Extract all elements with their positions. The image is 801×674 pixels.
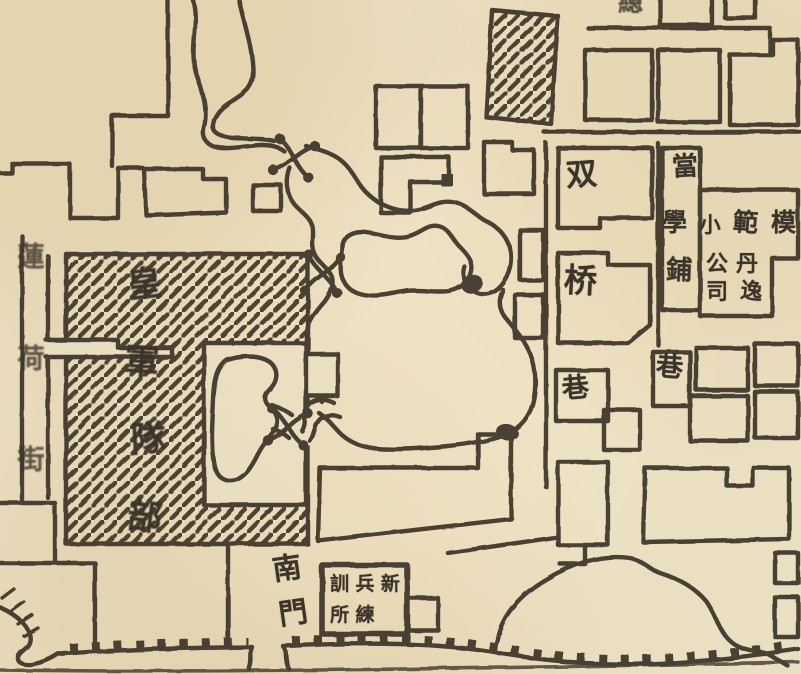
label-company: 公 丹 司 逸 [706,254,766,310]
training-char: 所 [330,606,349,625]
label-clipped-top: 總 [618,0,643,15]
bridge-symbol-north [270,135,319,181]
army-hq-char: 軍 [123,344,160,381]
south-gate-char: 門 [277,597,310,630]
army-hq-char: 部 [125,499,164,538]
label-west-street: 蓮 荷 街 [14,244,48,474]
training-char: 練 [355,606,374,625]
historical-city-map: 皇 軍 隊 部 双 桥 當 鋪 學 小 範 模 公 丹 司 逸 巷 巷 南 門 … [0,0,801,674]
school-char: 模 [771,210,796,236]
training-char: 訓 [330,575,349,594]
buildings-top-right [544,0,800,132]
label-army-hq: 皇 軍 隊 部 [116,268,174,536]
building-beside-depot [408,598,438,630]
training-char: 新 [381,575,400,594]
company-char: 逸 [739,281,772,312]
army-hq-char: 隊 [131,422,168,459]
training-char: 兵 [355,575,374,594]
south-gate-char: 南 [270,552,303,585]
school-char: 範 [732,209,759,237]
label-qiao: 桥 [563,263,598,298]
label-pawnshop-pu: 鋪 [666,258,693,285]
west-street-char: 街 [18,447,45,474]
army-hq-block [46,254,308,544]
label-shuang: 双 [565,159,598,192]
company-char: 司 [706,282,736,310]
west-street-char: 荷 [18,346,45,373]
label-recruit-training-office: 訓 兵 新 所 練 [327,569,403,631]
street-topleft [0,0,226,218]
buildings-east [546,143,798,487]
school-char: 學 [662,210,687,236]
west-street-char: 蓮 [18,244,45,271]
label-lane-west: 巷 [561,374,590,403]
label-model-primary-school: 學 小 範 模 [662,210,796,236]
army-hq-char: 皇 [126,266,164,304]
label-lane-east: 巷 [655,353,684,382]
company-char: 公 [706,254,736,282]
label-pawnshop-dang: 當 [671,153,698,180]
school-char: 小 [700,215,721,236]
company-char: 丹 [736,254,766,282]
